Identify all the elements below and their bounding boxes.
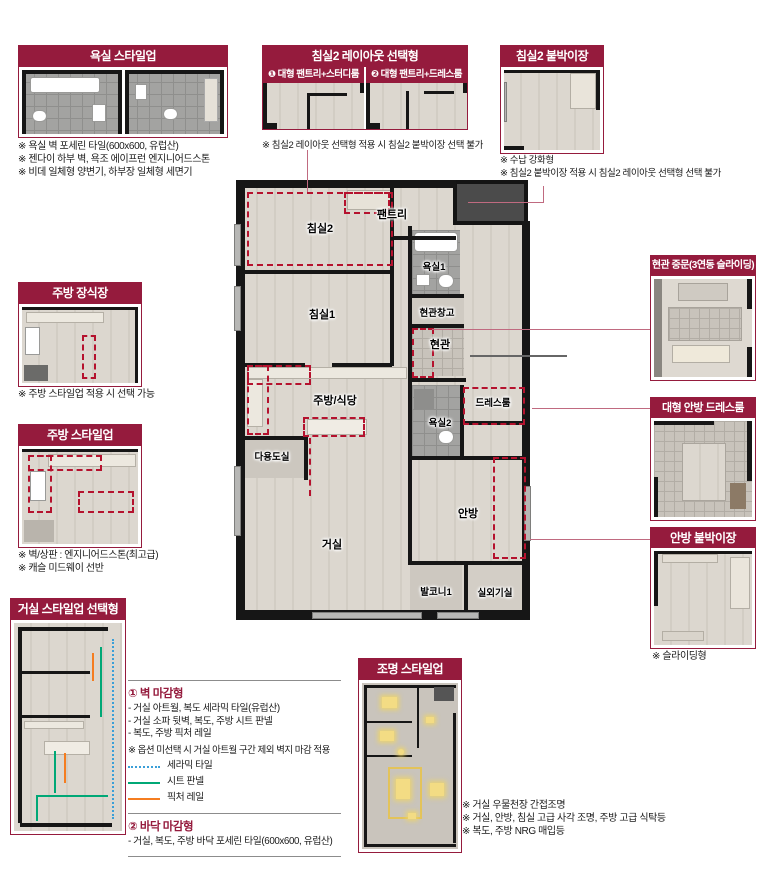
kitchen-styleup-image — [22, 449, 138, 544]
light-master — [430, 783, 444, 796]
room-label-living: 거실 — [322, 536, 342, 552]
master-closet-image — [654, 551, 752, 645]
built-in-closet — [730, 557, 750, 609]
room-label-bed1: 침실1 — [309, 306, 335, 322]
bath-plan-image-2 — [125, 70, 225, 134]
master-closet-zone — [493, 457, 526, 559]
kitchen-counter-option-zone — [28, 455, 52, 513]
refrigerator — [25, 327, 40, 355]
window-bench — [662, 631, 704, 641]
cabinet-option-zone — [82, 335, 96, 379]
island-table — [44, 741, 90, 755]
living-styleup-box: 거실 스타일업 선택형 — [10, 598, 126, 835]
entry-bench — [672, 345, 730, 363]
room-label-bath1: 욕실1 — [423, 259, 446, 273]
sink — [416, 274, 430, 286]
room-label-utility: 다용도실 — [255, 449, 290, 463]
connector-bed2-layout — [307, 150, 308, 192]
bed2-layout-title: 침실2 레이아웃 선택형 — [263, 46, 467, 67]
connector-master-closet — [530, 539, 650, 540]
sheet-panel-line — [100, 647, 102, 717]
toilet-icon — [32, 110, 47, 122]
master-closet-title: 안방 붙박이장 — [651, 528, 755, 548]
legend-wall-item-3: - 복도, 주방 픽처 레일 — [128, 728, 341, 741]
core-block — [434, 687, 454, 701]
picture-rail-line — [92, 653, 94, 681]
legend-floor-heading: ② 바닥 마감형 — [128, 818, 341, 834]
ceramic-tile-swatch — [128, 766, 160, 768]
room-label-entry: 현관 — [430, 336, 450, 352]
main-floorplan: 침실2 팬트리 욕실1 현관창고 현관 침실1 주방/식당 다용도실 욕실2 드… — [232, 166, 532, 636]
bathtub — [30, 77, 100, 93]
shower — [414, 389, 434, 409]
bath-note-2: ※ 젠다이 하부 벽, 욕조 에이프런 엔지니어드스톤 — [18, 153, 210, 167]
bath-plan-image-1 — [22, 70, 122, 134]
sheet-panel-label: 시트 판넬 — [167, 776, 204, 789]
divider — [128, 813, 341, 814]
entrance-door-image — [654, 279, 752, 377]
bed2-layout-option1-label: ❶ 대형 팬트리+스터디룸 — [263, 67, 364, 83]
sheet-panel-line — [36, 795, 38, 821]
legend-floor-item-1: - 거실, 복도, 주방 바닥 포세린 타일(600x600, 유럽산) — [128, 836, 341, 849]
connector-bed2-closet-h — [468, 202, 544, 203]
kitchen-styleup-note-2: ※ 캐슬 미드웨이 선반 — [18, 562, 104, 576]
utility-block — [24, 365, 48, 381]
room-label-kitchen: 주방/식당 — [313, 392, 357, 408]
kitchen-styleup-title: 주방 스타일업 — [19, 425, 141, 446]
sink — [135, 84, 147, 100]
legend-wall-note: ※ 옵션 미선택 시 거실 아트월 구간 제외 벽지 마감 적용 — [128, 744, 341, 757]
bed2-layout-option2-label: ❷ 대형 팬트리+드레스룸 — [366, 67, 467, 83]
room-label-outdoor-unit: 실외기실 — [478, 585, 513, 599]
corridor-option-line — [309, 438, 311, 496]
sheet-panel-swatch — [128, 782, 160, 784]
kitchen-island-option-zone — [78, 491, 134, 513]
bath-note-1: ※ 욕실 벽 포세린 타일(600x600, 유럽산) — [18, 140, 178, 154]
room-label-bath2: 욕실2 — [429, 415, 452, 429]
room-label-pantry: 팬트리 — [377, 206, 407, 222]
kitchen-island-zone — [303, 417, 365, 437]
light-bed2 — [382, 697, 397, 708]
sheet-panel-line — [36, 795, 108, 797]
connector-entrance-door — [432, 329, 650, 330]
bath-note-3: ※ 비데 일체형 양변기, 하부장 일체형 세면기 — [18, 166, 192, 180]
bed2-closet-note-2: ※ 침실2 붙박이장 적용 시 침실2 레이아웃 선택형 선택 불가 — [500, 167, 721, 181]
living-styleup-image — [14, 623, 122, 831]
master-dressroom-image — [654, 421, 752, 517]
sink — [92, 104, 106, 122]
legend-key-sheet-panel: 시트 판넬 — [128, 777, 341, 789]
master-closet-box: 안방 붙박이장 — [650, 527, 756, 649]
bed2-layout-note: ※ 침실2 레이아웃 선택형 적용 시 침실2 붙박이장 선택 불가 — [262, 139, 483, 153]
kitchen-cabinet-note: ※ 주방 스타일업 적용 시 선택 가능 — [18, 388, 155, 402]
bed2-layout-option2-image — [366, 83, 467, 129]
kitchen-counter-zone — [247, 365, 269, 435]
lighting-note-1: ※ 거실 우물천장 간접조명 — [462, 799, 565, 813]
connector-bed2-closet-v — [543, 186, 544, 203]
entry-shoe-cabinet — [678, 283, 728, 301]
legend-key-picture-rail: 픽처 레일 — [128, 793, 341, 805]
entrance-door-box: 현관 중문(3연동 슬라이딩) — [650, 255, 756, 381]
picture-rail-line — [64, 753, 66, 783]
sheet-panel-line — [54, 751, 56, 793]
toilet-icon — [163, 108, 178, 120]
room-label-bed2: 침실2 — [307, 220, 333, 236]
divider — [128, 680, 341, 681]
bath-styleup-box: 욕실 스타일업 — [18, 45, 228, 138]
light-bed1 — [380, 731, 394, 741]
light-kitchen — [398, 749, 404, 755]
divider — [128, 856, 341, 857]
utility-floor — [24, 520, 54, 542]
light-hall — [408, 813, 416, 819]
room-label-dressroom: 드레스룸 — [476, 395, 511, 409]
entrance-door-title: 현관 중문(3연동 슬라이딩) — [651, 256, 755, 276]
lighting-styleup-image — [362, 683, 458, 849]
built-in-closet — [570, 73, 596, 109]
kitchen-cabinet-title: 주방 장식장 — [19, 283, 141, 304]
closet-top-strip — [662, 554, 718, 563]
light-living — [396, 779, 410, 799]
ceramic-tile-line — [112, 639, 114, 819]
kitchen-cabinet-image — [22, 307, 138, 383]
master-dressroom-title: 대형 안방 드레스룸 — [651, 398, 755, 418]
legend-wall-heading: ① 벽 마감형 — [128, 685, 341, 701]
dressroom-cabinet — [730, 483, 746, 509]
apartment-options-diagram: 욕실 스타일업 ※ 욕실 벽 포세린 타일(600x600, 유럽산) ※ 젠다… — [0, 0, 760, 881]
living-styleup-title: 거실 스타일업 선택형 — [11, 599, 125, 620]
bathtub — [414, 232, 458, 252]
legend-wall-item-2: - 거실 소파 뒷벽, 복도, 주방 시트 판넬 — [128, 716, 341, 729]
toilet-icon — [438, 430, 454, 444]
connector-master-dress — [532, 408, 650, 409]
ceramic-tile-label: 세라믹 타일 — [167, 760, 212, 773]
room-label-balcony1: 발코니1 — [420, 584, 452, 598]
toilet-icon — [438, 274, 454, 288]
kitchen-styleup-box: 주방 스타일업 — [18, 424, 142, 548]
master-closet-note: ※ 슬라이딩형 — [652, 650, 706, 664]
kitchen-cabinet-box: 주방 장식장 — [18, 282, 142, 387]
bed2-closet-box: 침실2 붙박이장 — [500, 45, 604, 154]
kitchen-styleup-note-1: ※ 벽/상판 : 엔지니어드스톤(최고급) — [18, 549, 158, 563]
legend-wall-item-1: - 거실 아트월, 복도 세라믹 타일(유럽산) — [128, 703, 341, 716]
lighting-note-3: ※ 복도, 주방 NRG 매입등 — [462, 825, 565, 839]
finish-legend: ① 벽 마감형 - 거실 아트월, 복도 세라믹 타일(유럽산) - 거실 소파… — [128, 676, 341, 861]
bed2-layout-box: 침실2 레이아웃 선택형 ❶ 대형 팬트리+스터디룸 ❷ 대형 팬트리+드레스룸 — [262, 45, 468, 130]
picture-rail-swatch — [128, 798, 160, 800]
master-dressroom-box: 대형 안방 드레스룸 — [650, 397, 756, 521]
bed2-closet-title: 침실2 붙박이장 — [501, 46, 603, 67]
lighting-styleup-title: 조명 스타일업 — [359, 659, 461, 680]
bed2-closet-image — [504, 70, 600, 150]
lighting-note-2: ※ 거실, 안방, 침실 고급 사각 조명, 주방 고급 식탁등 — [462, 812, 666, 826]
shower-panel — [204, 78, 218, 122]
dressroom-wardrobe — [682, 443, 726, 501]
middle-door-block — [668, 307, 742, 341]
bed2-layout-option1-image — [263, 83, 364, 129]
corridor-wall-line — [470, 355, 567, 357]
room-label-master: 안방 — [458, 505, 478, 521]
bath-styleup-title: 욕실 스타일업 — [19, 46, 227, 67]
lighting-styleup-box: 조명 스타일업 — [358, 658, 462, 853]
room-label-entry-storage: 현관창고 — [420, 305, 455, 319]
light-bath — [426, 717, 434, 723]
picture-rail-label: 픽처 레일 — [167, 792, 204, 805]
legend-key-ceramic: 세라믹 타일 — [128, 761, 341, 773]
